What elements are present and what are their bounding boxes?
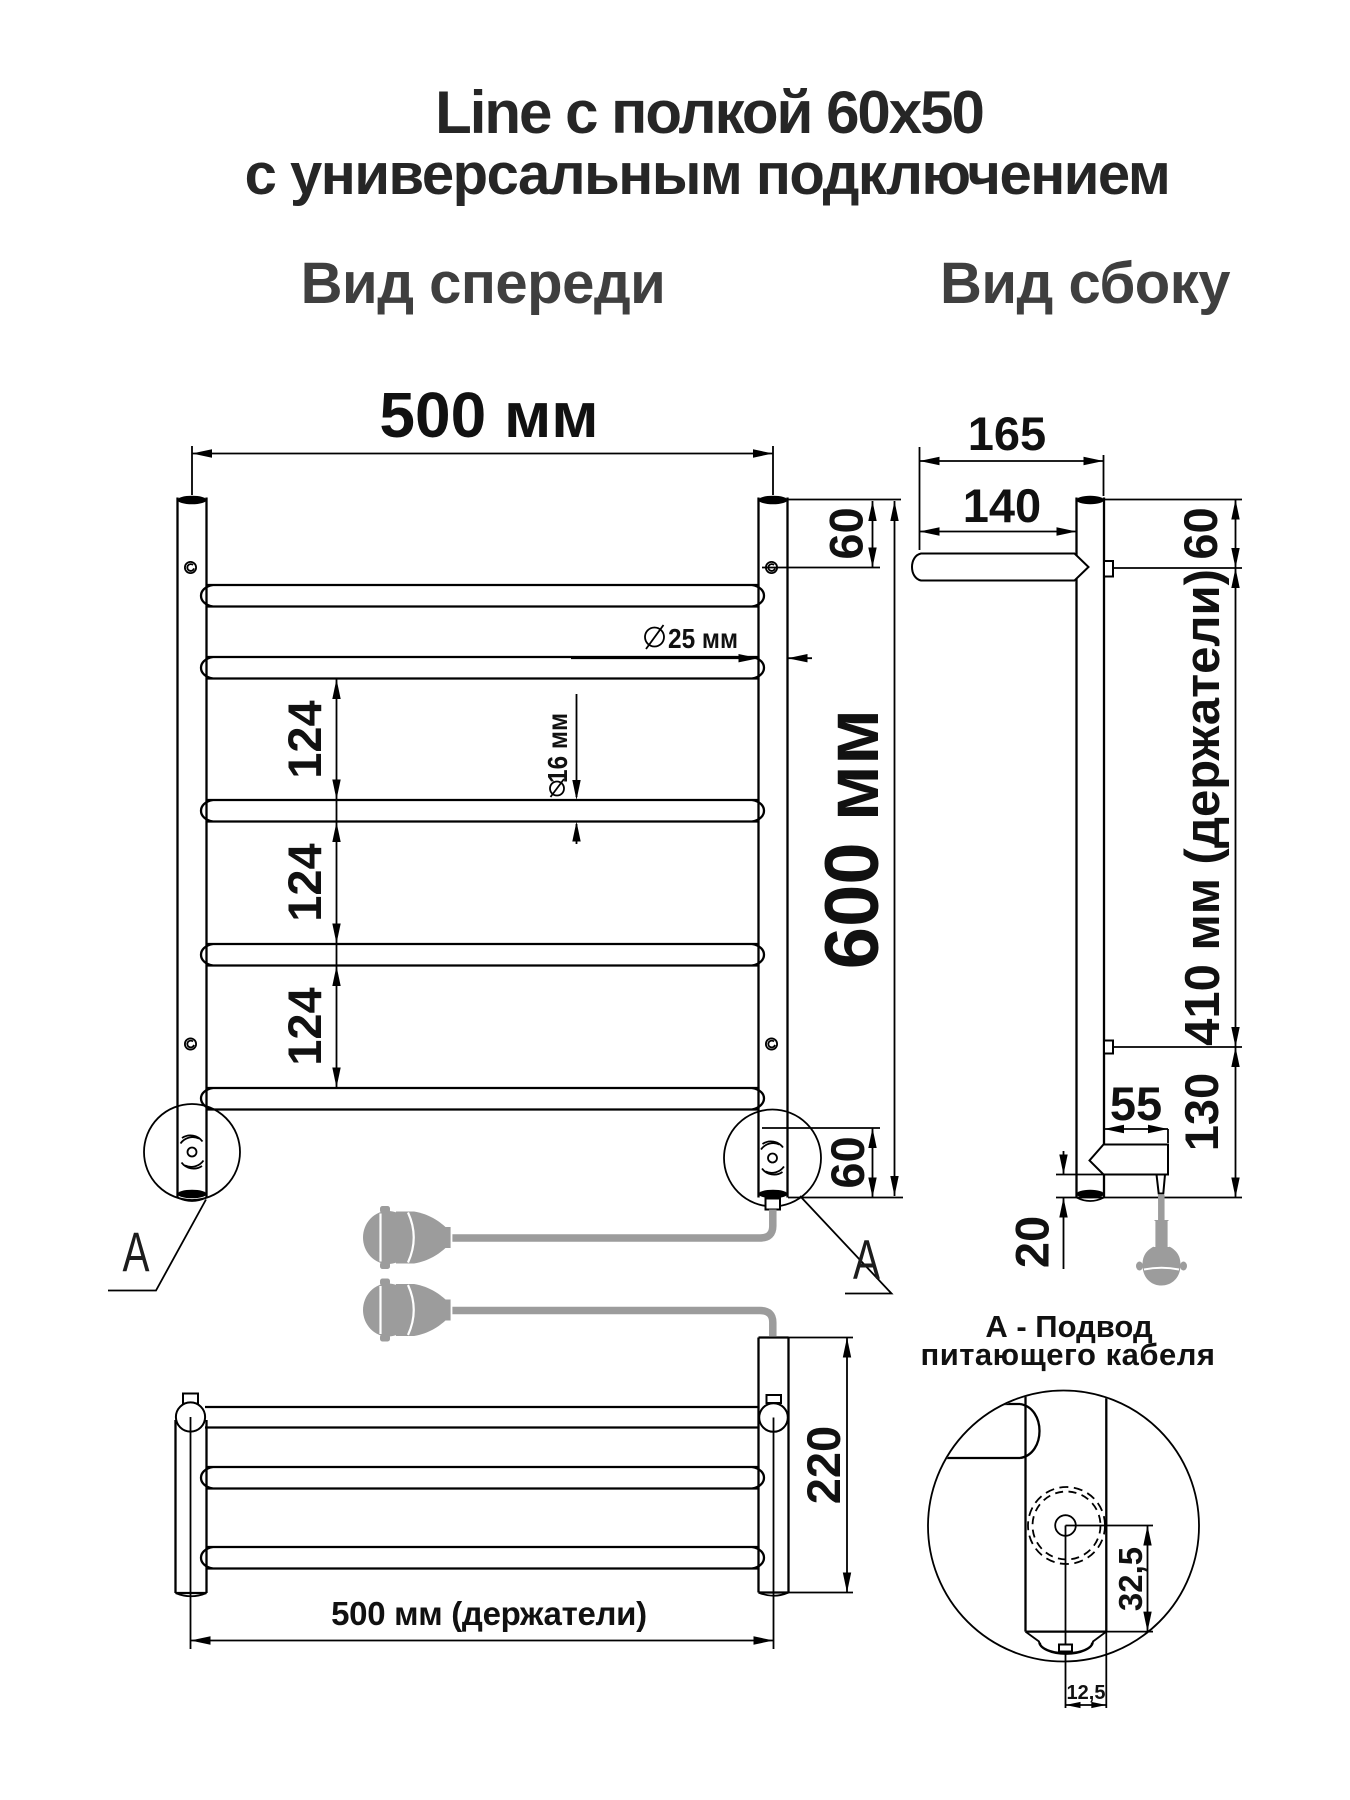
svg-text:124: 124 bbox=[278, 843, 331, 921]
svg-text:питающего кабеля: питающего кабеля bbox=[920, 1337, 1215, 1372]
svg-text:Вид спереди: Вид спереди bbox=[301, 251, 666, 316]
svg-text:60: 60 bbox=[1174, 507, 1227, 559]
svg-text:130: 130 bbox=[1175, 1073, 1228, 1151]
svg-text:124: 124 bbox=[278, 700, 331, 778]
svg-text:16 мм: 16 мм bbox=[542, 713, 573, 783]
svg-text:600 мм: 600 мм bbox=[810, 709, 895, 969]
svg-text:410 мм (держатели): 410 мм (держатели) bbox=[1176, 569, 1230, 1046]
svg-text:А: А bbox=[123, 1220, 150, 1283]
svg-text:500 мм (держатели): 500 мм (держатели) bbox=[331, 1595, 647, 1632]
svg-text:220: 220 bbox=[797, 1426, 850, 1504]
svg-text:20: 20 bbox=[1006, 1216, 1059, 1268]
svg-text:25 мм: 25 мм bbox=[668, 623, 738, 654]
svg-text:А: А bbox=[853, 1228, 880, 1291]
svg-text:55: 55 bbox=[1110, 1077, 1162, 1130]
svg-text:124: 124 bbox=[278, 987, 331, 1065]
svg-text:с универсальным подключением: с универсальным подключением bbox=[245, 142, 1170, 207]
svg-text:165: 165 bbox=[968, 407, 1046, 460]
svg-text:60: 60 bbox=[820, 507, 873, 559]
svg-text:32,5: 32,5 bbox=[1112, 1547, 1149, 1611]
svg-text:500 мм: 500 мм bbox=[379, 379, 598, 451]
svg-text:Вид сбоку: Вид сбоку bbox=[940, 251, 1230, 316]
svg-text:12,5: 12,5 bbox=[1067, 1682, 1106, 1704]
svg-text:140: 140 bbox=[963, 479, 1041, 532]
svg-text:60: 60 bbox=[821, 1136, 874, 1188]
svg-text:Line с полкой 60х50: Line с полкой 60х50 bbox=[435, 79, 983, 146]
